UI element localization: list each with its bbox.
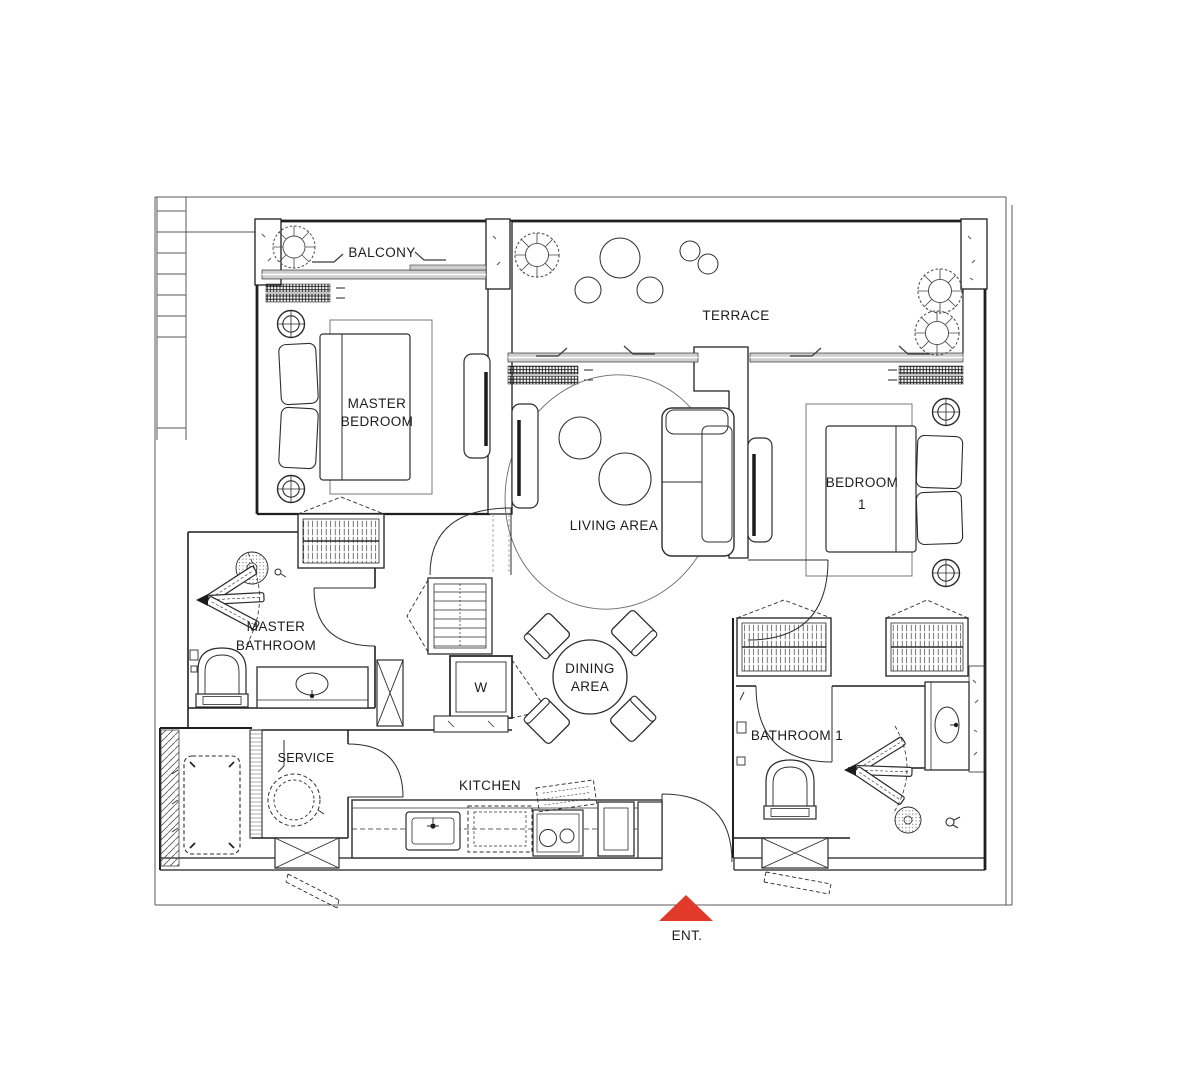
shaft — [377, 660, 403, 726]
entrance-arrow-icon — [659, 895, 713, 921]
wall-fixture — [190, 650, 198, 660]
washer-closet-label: W — [474, 680, 487, 695]
dining-label-line1: DINING — [565, 661, 615, 676]
shaft — [762, 838, 828, 868]
sink — [406, 812, 460, 850]
master-bedroom: MASTER BEDROOM — [278, 311, 491, 569]
pillow — [278, 407, 318, 469]
master-bedroom-door — [430, 508, 512, 575]
living-area: LIVING AREA — [478, 349, 747, 634]
ceiling-speaker-icon — [278, 476, 305, 503]
dining-area: DINING AREA — [523, 609, 658, 745]
wall-fixture — [737, 757, 745, 765]
pillow — [916, 435, 963, 489]
bathroom1-door — [756, 686, 832, 762]
end-panel — [638, 802, 662, 858]
washer-closet: W — [450, 656, 547, 718]
bathroom-1: BATHROOM 1 — [737, 666, 985, 894]
living-area-label: LIVING AREA — [570, 518, 658, 533]
tv-unit — [748, 438, 772, 542]
kitchen-label: KITCHEN — [459, 778, 521, 793]
pivot-arrow-icon — [844, 764, 856, 776]
washing-machine — [268, 774, 324, 826]
master-bedroom-label-line1: MASTER — [348, 396, 407, 411]
plant-icon — [515, 233, 559, 277]
door-swing — [348, 744, 403, 797]
terrace: TERRACE — [515, 233, 962, 355]
wardrobe — [298, 497, 384, 568]
entrance-label: ENT. — [672, 928, 703, 943]
master-bathroom-label-line2: BATHROOM — [236, 638, 316, 653]
coffee-table — [599, 453, 651, 505]
bedroom-1: BEDROOM 1 — [737, 399, 968, 677]
sofa — [662, 408, 734, 556]
shaft — [275, 838, 339, 868]
master-bathroom-door — [314, 588, 375, 646]
wardrobe — [737, 600, 831, 676]
ceiling-speaker-icon — [278, 311, 305, 338]
tv-unit — [464, 354, 490, 458]
planter-circles-icon — [575, 238, 718, 303]
balcony-label: BALCONY — [348, 245, 415, 260]
pantry-shelves — [407, 578, 492, 654]
plant-icon — [915, 311, 959, 355]
pillow — [278, 343, 318, 405]
service-label: SERVICE — [278, 751, 335, 765]
vanity — [925, 682, 969, 770]
dining-label-line2: AREA — [571, 679, 609, 694]
chair — [610, 609, 658, 657]
pivot-arrow-icon — [196, 594, 208, 606]
ac-unit — [172, 756, 240, 854]
dining-table — [553, 640, 627, 714]
floor-drain-icon — [895, 807, 921, 833]
bedroom1-label-line2: 1 — [858, 497, 866, 512]
hatched-wall — [161, 730, 179, 866]
kitchen: KITCHEN — [352, 778, 662, 858]
bedroom1-label-line1: BEDROOM — [826, 475, 899, 490]
balcony: BALCONY — [273, 226, 416, 268]
coffee-table — [559, 417, 601, 459]
vanity — [257, 667, 368, 708]
plant-icon — [918, 269, 962, 313]
bench — [434, 716, 508, 732]
ceiling-speaker-icon — [933, 399, 960, 426]
master-bedroom-label-line2: BEDROOM — [341, 414, 414, 429]
tap-icon — [310, 694, 314, 698]
hallway: W — [377, 578, 547, 732]
robe-hook-icon — [275, 569, 286, 577]
tiled-wall — [969, 666, 985, 772]
floor-plan-svg: BALCONY TERRACE MASTER BEDROOM — [0, 0, 1200, 1074]
chair — [523, 697, 571, 745]
wall-fixture — [191, 666, 197, 672]
access-panel — [286, 874, 339, 908]
tap-icon — [954, 723, 958, 727]
bathroom1-label: BATHROOM 1 — [751, 728, 843, 743]
wall-fixture — [737, 722, 746, 733]
entrance: ENT. — [659, 895, 713, 943]
ceiling-speaker-icon — [933, 560, 960, 587]
fridge — [598, 802, 634, 856]
entry-door — [662, 794, 732, 862]
floor-plan-page: BALCONY TERRACE MASTER BEDROOM — [0, 0, 1200, 1074]
shower-mixer-icon — [946, 817, 960, 828]
pillow — [916, 491, 963, 545]
master-bathroom-label-line1: MASTER — [247, 619, 306, 634]
toilet — [196, 648, 248, 707]
access-panel — [764, 872, 831, 894]
master-bathroom: MASTER BATHROOM — [190, 552, 368, 708]
toilet — [764, 760, 816, 819]
tv-unit — [512, 404, 538, 508]
plant-icon — [273, 226, 315, 268]
wardrobe — [886, 600, 968, 676]
terrace-label: TERRACE — [702, 308, 769, 323]
